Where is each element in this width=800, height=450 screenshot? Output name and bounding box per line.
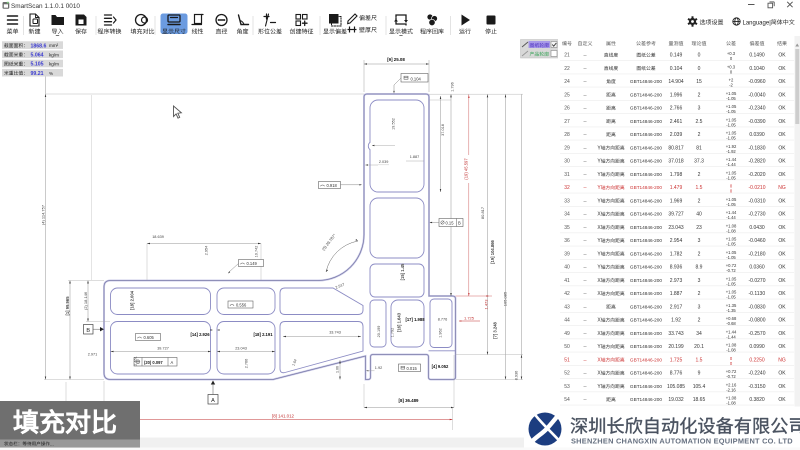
svg-text:OK: OK bbox=[778, 145, 786, 151]
svg-text:2.954: 2.954 bbox=[670, 238, 683, 244]
svg-text:-0.2570: -0.2570 bbox=[749, 331, 766, 337]
svg-text:0.1490: 0.1490 bbox=[749, 53, 765, 59]
svg-text:--: -- bbox=[583, 145, 587, 151]
svg-text:-1.44: -1.44 bbox=[726, 215, 736, 220]
svg-text:1.06: 1.06 bbox=[336, 366, 340, 373]
svg-text:2.766: 2.766 bbox=[245, 359, 249, 369]
svg-text:30: 30 bbox=[564, 159, 570, 165]
svg-text:GBT14846-200: GBT14846-200 bbox=[630, 79, 662, 84]
svg-text:-0.2820: -0.2820 bbox=[749, 159, 766, 165]
svg-text:0.2250: 0.2250 bbox=[749, 357, 765, 363]
svg-text:GBT14846-200: GBT14846-200 bbox=[630, 212, 662, 217]
svg-text:-0.72: -0.72 bbox=[726, 268, 736, 273]
svg-text:1.792: 1.792 bbox=[391, 328, 395, 338]
svg-text:--: -- bbox=[583, 278, 587, 284]
svg-text:1.479: 1.479 bbox=[670, 185, 683, 191]
svg-text:80.817: 80.817 bbox=[668, 145, 684, 151]
svg-text:B: B bbox=[86, 328, 90, 334]
svg-text:2.5: 2.5 bbox=[696, 119, 703, 125]
svg-text:-0.0390: -0.0390 bbox=[749, 119, 766, 125]
svg-text:OK: OK bbox=[778, 212, 786, 218]
svg-text:9: 9 bbox=[698, 371, 701, 377]
svg-text:-1.44: -1.44 bbox=[726, 162, 736, 167]
svg-text:GBT14846-200: GBT14846-200 bbox=[630, 278, 662, 283]
svg-text:GBT14846-200: GBT14846-200 bbox=[630, 265, 662, 270]
svg-text:2.954: 2.954 bbox=[205, 246, 209, 256]
svg-text:(19) 45.597: (19) 45.597 bbox=[463, 158, 468, 180]
svg-text:[18] 2.004: [18] 2.004 bbox=[130, 290, 135, 310]
svg-text:NG: NG bbox=[778, 185, 786, 191]
svg-text:15: 15 bbox=[696, 79, 702, 85]
svg-text:GBT14846-200: GBT14846-200 bbox=[630, 238, 662, 243]
svg-text:GBT14846-200: GBT14846-200 bbox=[630, 304, 662, 309]
svg-text:GBT14846-200: GBT14846-200 bbox=[630, 185, 662, 190]
svg-text:37.018: 37.018 bbox=[668, 159, 684, 165]
svg-text:49: 49 bbox=[564, 331, 570, 337]
svg-text:1868.6: 1868.6 bbox=[31, 43, 47, 49]
svg-text:54: 54 bbox=[564, 397, 570, 403]
svg-text:-1.05: -1.05 bbox=[726, 295, 736, 300]
svg-text:1.887: 1.887 bbox=[410, 155, 420, 159]
svg-text:41: 41 bbox=[564, 278, 570, 284]
svg-text:53: 53 bbox=[564, 384, 570, 390]
svg-text:80.817: 80.817 bbox=[480, 206, 485, 219]
svg-text:GBT14846-200: GBT14846-200 bbox=[630, 331, 662, 336]
svg-text:2.766: 2.766 bbox=[670, 106, 683, 112]
svg-text:0.3820: 0.3820 bbox=[749, 397, 765, 403]
svg-text:--: -- bbox=[583, 357, 587, 363]
svg-text:2: 2 bbox=[698, 291, 701, 297]
svg-text:OK: OK bbox=[778, 53, 786, 59]
svg-text:1.996: 1.996 bbox=[670, 92, 683, 98]
svg-text:8.9: 8.9 bbox=[696, 265, 703, 271]
svg-text:--: -- bbox=[583, 331, 587, 337]
svg-text:33.743: 33.743 bbox=[668, 331, 684, 337]
svg-text:[15] 1.45: [15] 1.45 bbox=[400, 263, 405, 280]
svg-text:1.92: 1.92 bbox=[671, 318, 681, 324]
svg-text:[19] 104.866: [19] 104.866 bbox=[490, 239, 495, 263]
svg-text:-0.1130: -0.1130 bbox=[749, 291, 766, 297]
svg-text:--: -- bbox=[583, 225, 587, 231]
svg-text:31: 31 bbox=[564, 172, 570, 178]
svg-text:44: 44 bbox=[564, 318, 570, 324]
svg-text:0.149: 0.149 bbox=[670, 53, 683, 59]
svg-text:-0.0210: -0.0210 bbox=[749, 185, 766, 191]
svg-text:[4] 9.052: [4] 9.052 bbox=[432, 364, 449, 369]
svg-text:--: -- bbox=[583, 344, 587, 350]
svg-text:[1] 99.965: [1] 99.965 bbox=[65, 296, 70, 316]
svg-text:--: -- bbox=[583, 251, 587, 257]
svg-text:2.039: 2.039 bbox=[670, 132, 683, 138]
svg-text:27: 27 bbox=[564, 119, 570, 125]
svg-text:20.199: 20.199 bbox=[377, 326, 381, 338]
svg-text:OK: OK bbox=[778, 397, 786, 403]
svg-text:36: 36 bbox=[564, 238, 570, 244]
svg-text:5.064: 5.064 bbox=[31, 53, 44, 59]
svg-text:GBT14846-200: GBT14846-200 bbox=[630, 132, 662, 137]
svg-text:0.556: 0.556 bbox=[236, 303, 247, 308]
svg-text:1.887: 1.887 bbox=[670, 291, 683, 297]
svg-text:OK: OK bbox=[778, 238, 786, 244]
svg-text:5.105: 5.105 bbox=[31, 62, 44, 68]
svg-text:kg/m: kg/m bbox=[49, 52, 59, 57]
svg-text:8.776: 8.776 bbox=[670, 371, 683, 377]
svg-text:--: -- bbox=[583, 66, 587, 72]
svg-text:GBT14846-200: GBT14846-200 bbox=[630, 371, 662, 376]
svg-text:40: 40 bbox=[696, 212, 702, 218]
svg-text:GBT14846-200: GBT14846-200 bbox=[630, 291, 662, 296]
svg-text:22: 22 bbox=[564, 66, 570, 72]
svg-text:1.969: 1.969 bbox=[670, 198, 683, 204]
svg-text:42: 42 bbox=[564, 291, 570, 297]
svg-text:-0.0310: -0.0310 bbox=[749, 198, 766, 204]
svg-text:2.971: 2.971 bbox=[88, 353, 98, 357]
svg-text:[17] 1.988: [17] 1.988 bbox=[405, 317, 425, 322]
svg-text:--: -- bbox=[583, 318, 587, 324]
svg-text:1.473: 1.473 bbox=[484, 299, 489, 310]
svg-text:0.15: 0.15 bbox=[446, 221, 455, 226]
svg-text:3: 3 bbox=[698, 238, 701, 244]
svg-text:34: 34 bbox=[564, 212, 570, 218]
svg-text:3: 3 bbox=[698, 304, 701, 310]
svg-text:...: ... bbox=[50, 441, 54, 446]
svg-text:0.0990: 0.0990 bbox=[749, 344, 765, 350]
svg-text:GBT14846-200: GBT14846-200 bbox=[630, 384, 662, 389]
svg-text:OK: OK bbox=[778, 132, 786, 138]
svg-text:--: -- bbox=[583, 238, 587, 244]
svg-text:GBT14846-200: GBT14846-200 bbox=[630, 145, 662, 150]
svg-text:A: A bbox=[211, 398, 215, 404]
svg-text:99.21: 99.21 bbox=[31, 71, 44, 77]
svg-text:1.5: 1.5 bbox=[696, 185, 703, 191]
svg-text:-0.68: -0.68 bbox=[726, 321, 736, 326]
svg-text:GBT14846-200: GBT14846-200 bbox=[630, 318, 662, 323]
svg-text:--: -- bbox=[583, 304, 587, 310]
svg-text:--: -- bbox=[583, 371, 587, 377]
svg-text:mm²: mm² bbox=[49, 43, 59, 48]
svg-text:2: 2 bbox=[698, 172, 701, 178]
svg-text:2: 2 bbox=[698, 251, 701, 257]
svg-text:14.904: 14.904 bbox=[668, 79, 684, 85]
svg-text:23.043: 23.043 bbox=[235, 347, 247, 351]
svg-text:23: 23 bbox=[696, 225, 702, 231]
svg-text:2.917: 2.917 bbox=[670, 304, 683, 310]
svg-text:10.742: 10.742 bbox=[255, 246, 259, 258]
svg-text:B: B bbox=[458, 221, 461, 226]
svg-text:[8] 141.012: [8] 141.012 bbox=[272, 414, 295, 419]
svg-text:[7] 3.248: [7] 3.248 bbox=[493, 321, 498, 338]
svg-text:0.104: 0.104 bbox=[411, 76, 422, 81]
svg-text:OK: OK bbox=[778, 92, 786, 98]
svg-text:(20) 0.097: (20) 0.097 bbox=[144, 360, 163, 365]
svg-text:OK: OK bbox=[778, 251, 786, 257]
svg-text:0.0390: 0.0390 bbox=[749, 132, 765, 138]
svg-text:1.798: 1.798 bbox=[670, 172, 683, 178]
svg-text:29: 29 bbox=[564, 145, 570, 151]
svg-text:(2) 18.146: (2) 18.146 bbox=[83, 291, 88, 310]
svg-text:19.032: 19.032 bbox=[668, 397, 684, 403]
svg-text:0.015: 0.015 bbox=[407, 366, 418, 371]
svg-text:--: -- bbox=[583, 92, 587, 98]
svg-text:52: 52 bbox=[564, 371, 570, 377]
svg-text:39.727: 39.727 bbox=[668, 212, 684, 218]
svg-text:--: -- bbox=[583, 212, 587, 218]
svg-text:GBT14846-200: GBT14846-200 bbox=[630, 251, 662, 256]
svg-text:-1.05: -1.05 bbox=[726, 96, 736, 101]
svg-text:SHENZHEN CHANGXIN AUTOMATION E: SHENZHEN CHANGXIN AUTOMATION EQUIPMENT C… bbox=[571, 437, 793, 446]
svg-text:OK: OK bbox=[778, 371, 786, 377]
svg-text:OK: OK bbox=[778, 159, 786, 165]
svg-text:GBT14846-200: GBT14846-200 bbox=[630, 397, 662, 402]
svg-text:0.0360: 0.0360 bbox=[749, 265, 765, 271]
svg-text:--: -- bbox=[583, 185, 587, 191]
svg-text:1.725: 1.725 bbox=[670, 357, 683, 363]
svg-text:OK: OK bbox=[778, 291, 786, 297]
svg-text:20.199: 20.199 bbox=[668, 344, 684, 350]
svg-text:-0.2020: -0.2020 bbox=[749, 172, 766, 178]
svg-text:(4) 114.757: (4) 114.757 bbox=[40, 204, 45, 225]
svg-text:105.085: 105.085 bbox=[503, 291, 508, 306]
svg-text:OK: OK bbox=[778, 79, 786, 85]
svg-text:GBT14846-200: GBT14846-200 bbox=[630, 92, 662, 97]
svg-text:OK: OK bbox=[778, 265, 786, 271]
svg-text:OK: OK bbox=[778, 304, 786, 310]
svg-text:%: % bbox=[49, 71, 53, 76]
svg-text:-0.0960: -0.0960 bbox=[749, 79, 766, 85]
svg-text:37.3: 37.3 bbox=[694, 159, 704, 165]
svg-text:kg/m: kg/m bbox=[49, 62, 59, 67]
svg-text:0.104: 0.104 bbox=[670, 66, 683, 72]
svg-text:-0.3150: -0.3150 bbox=[749, 384, 766, 390]
svg-text:-0.0460: -0.0460 bbox=[749, 238, 766, 244]
svg-text:0.149: 0.149 bbox=[247, 261, 258, 266]
svg-text:OK: OK bbox=[778, 331, 786, 337]
svg-text:--: -- bbox=[583, 53, 587, 59]
svg-text:OK: OK bbox=[778, 172, 786, 178]
svg-text:-0.0270: -0.0270 bbox=[749, 278, 766, 284]
svg-text:-1.05: -1.05 bbox=[726, 242, 736, 247]
svg-text:OK: OK bbox=[778, 106, 786, 112]
svg-text:GBT14846-200: GBT14846-200 bbox=[630, 106, 662, 111]
svg-text:--: -- bbox=[583, 384, 587, 390]
svg-text:GBT14846-200: GBT14846-200 bbox=[630, 344, 662, 349]
svg-text:Language|: Language| bbox=[743, 20, 772, 26]
svg-text:--: -- bbox=[583, 159, 587, 165]
svg-text:25: 25 bbox=[564, 92, 570, 98]
svg-text:[14] 2.926: [14] 2.926 bbox=[190, 332, 210, 337]
svg-text:1.725: 1.725 bbox=[464, 315, 475, 320]
svg-text:--: -- bbox=[583, 172, 587, 178]
svg-text:19.552: 19.552 bbox=[392, 118, 396, 130]
svg-text:40: 40 bbox=[564, 265, 570, 271]
svg-text:GBT14846-200: GBT14846-200 bbox=[630, 172, 662, 177]
svg-text:26: 26 bbox=[564, 106, 570, 112]
svg-text:-1.05: -1.05 bbox=[726, 122, 736, 127]
svg-text:2: 2 bbox=[698, 198, 701, 204]
svg-text:0.918: 0.918 bbox=[327, 183, 338, 188]
svg-text:81: 81 bbox=[696, 145, 702, 151]
svg-text:0.1040: 0.1040 bbox=[749, 66, 765, 72]
svg-text:-1.08: -1.08 bbox=[726, 348, 736, 353]
svg-text:--: -- bbox=[583, 119, 587, 125]
svg-text:39.727: 39.727 bbox=[157, 347, 169, 351]
svg-text:-0.0830: -0.0830 bbox=[749, 304, 766, 310]
svg-text:--: -- bbox=[583, 132, 587, 138]
svg-text:0: 0 bbox=[698, 53, 701, 59]
svg-text:0.0430: 0.0430 bbox=[749, 225, 765, 231]
svg-text:-0.0800: -0.0800 bbox=[749, 318, 766, 324]
svg-text:GBT14846-200: GBT14846-200 bbox=[630, 119, 662, 124]
svg-text:[8] 36.489: [8] 36.489 bbox=[398, 398, 419, 403]
svg-text:NG: NG bbox=[778, 357, 786, 363]
svg-text:33: 33 bbox=[564, 198, 570, 204]
svg-text:-0.2180: -0.2180 bbox=[749, 251, 766, 257]
svg-text:23.043: 23.043 bbox=[668, 225, 684, 231]
svg-text:3: 3 bbox=[698, 278, 701, 284]
svg-text:OK: OK bbox=[778, 278, 786, 284]
svg-text:[16] 1.643: [16] 1.643 bbox=[397, 312, 402, 332]
svg-text:-0.2240: -0.2240 bbox=[749, 371, 766, 377]
svg-text:37.018: 37.018 bbox=[441, 124, 445, 136]
svg-text:-0.2730: -0.2730 bbox=[749, 212, 766, 218]
svg-text:8.936: 8.936 bbox=[515, 371, 519, 381]
svg-text:20.1: 20.1 bbox=[694, 344, 704, 350]
svg-text:33.743: 33.743 bbox=[329, 331, 341, 335]
svg-text:3: 3 bbox=[698, 106, 701, 112]
svg-text:SmartScan 1.1.0.1 0010: SmartScan 1.1.0.1 0010 bbox=[11, 3, 80, 10]
svg-text:2: 2 bbox=[698, 318, 701, 324]
svg-text:32: 32 bbox=[564, 185, 570, 191]
svg-text:OK: OK bbox=[778, 384, 786, 390]
svg-text:2.461: 2.461 bbox=[134, 356, 138, 366]
svg-text:OK: OK bbox=[778, 225, 786, 231]
svg-text:8.776: 8.776 bbox=[438, 318, 448, 322]
svg-text:-1.05: -1.05 bbox=[726, 109, 736, 114]
svg-text:A: A bbox=[171, 360, 174, 365]
svg-text:-0.2340: -0.2340 bbox=[749, 106, 766, 112]
svg-text:8.936: 8.936 bbox=[670, 265, 683, 271]
svg-text:105.085: 105.085 bbox=[667, 384, 685, 390]
svg-text:[18] 2.191: [18] 2.191 bbox=[253, 332, 273, 337]
svg-text:--: -- bbox=[583, 265, 587, 271]
svg-text:2.461: 2.461 bbox=[670, 119, 683, 125]
svg-text:34: 34 bbox=[696, 331, 702, 337]
svg-text:GBT14846-200: GBT14846-200 bbox=[630, 225, 662, 230]
svg-text:OK: OK bbox=[778, 318, 786, 324]
svg-text:1.5: 1.5 bbox=[696, 357, 703, 363]
svg-text:35: 35 bbox=[564, 225, 570, 231]
svg-text:51: 51 bbox=[564, 357, 570, 363]
svg-text:-1.08: -1.08 bbox=[726, 401, 736, 406]
svg-text:1.962: 1.962 bbox=[439, 328, 443, 338]
svg-text:OK: OK bbox=[778, 66, 786, 72]
svg-text:--: -- bbox=[583, 106, 587, 112]
svg-text:50: 50 bbox=[564, 344, 570, 350]
svg-text:--: -- bbox=[583, 198, 587, 204]
svg-text:0.605: 0.605 bbox=[144, 335, 155, 340]
svg-text:-1.05: -1.05 bbox=[726, 136, 736, 141]
svg-text:24: 24 bbox=[564, 79, 570, 85]
svg-text:-0.72: -0.72 bbox=[726, 374, 736, 379]
svg-text:--: -- bbox=[583, 79, 587, 85]
svg-text:--: -- bbox=[583, 397, 587, 403]
svg-text:0: 0 bbox=[698, 66, 701, 72]
svg-text:GBT14846-200: GBT14846-200 bbox=[630, 198, 662, 203]
svg-text:2.039: 2.039 bbox=[379, 160, 389, 164]
svg-text:-0.1830: -0.1830 bbox=[749, 145, 766, 151]
svg-text:GBT14846-200: GBT14846-200 bbox=[630, 159, 662, 164]
svg-text:2: 2 bbox=[698, 92, 701, 98]
svg-text:-2: -2 bbox=[729, 83, 733, 88]
svg-text:GBT14846-200: GBT14846-200 bbox=[630, 357, 662, 362]
svg-text:1.782: 1.782 bbox=[670, 251, 683, 257]
svg-text:105.4: 105.4 bbox=[693, 384, 706, 390]
svg-text:18.65: 18.65 bbox=[693, 397, 706, 403]
svg-text:18.639: 18.639 bbox=[152, 235, 164, 239]
svg-text:OK: OK bbox=[778, 198, 786, 204]
svg-text:2.973: 2.973 bbox=[670, 278, 683, 284]
svg-text:1.796: 1.796 bbox=[451, 82, 455, 92]
svg-text:[9] 25.08: [9] 25.08 bbox=[387, 57, 405, 62]
svg-text:OK: OK bbox=[778, 119, 786, 125]
svg-text:21: 21 bbox=[564, 53, 570, 59]
svg-text:43: 43 bbox=[564, 304, 570, 310]
svg-text:-0.0040: -0.0040 bbox=[749, 92, 766, 98]
svg-text:OK: OK bbox=[778, 344, 786, 350]
svg-text:39: 39 bbox=[564, 251, 570, 257]
svg-text:28: 28 bbox=[564, 132, 570, 138]
svg-text:1.92: 1.92 bbox=[375, 366, 382, 370]
svg-text:2: 2 bbox=[698, 132, 701, 138]
svg-text:--: -- bbox=[583, 291, 587, 297]
